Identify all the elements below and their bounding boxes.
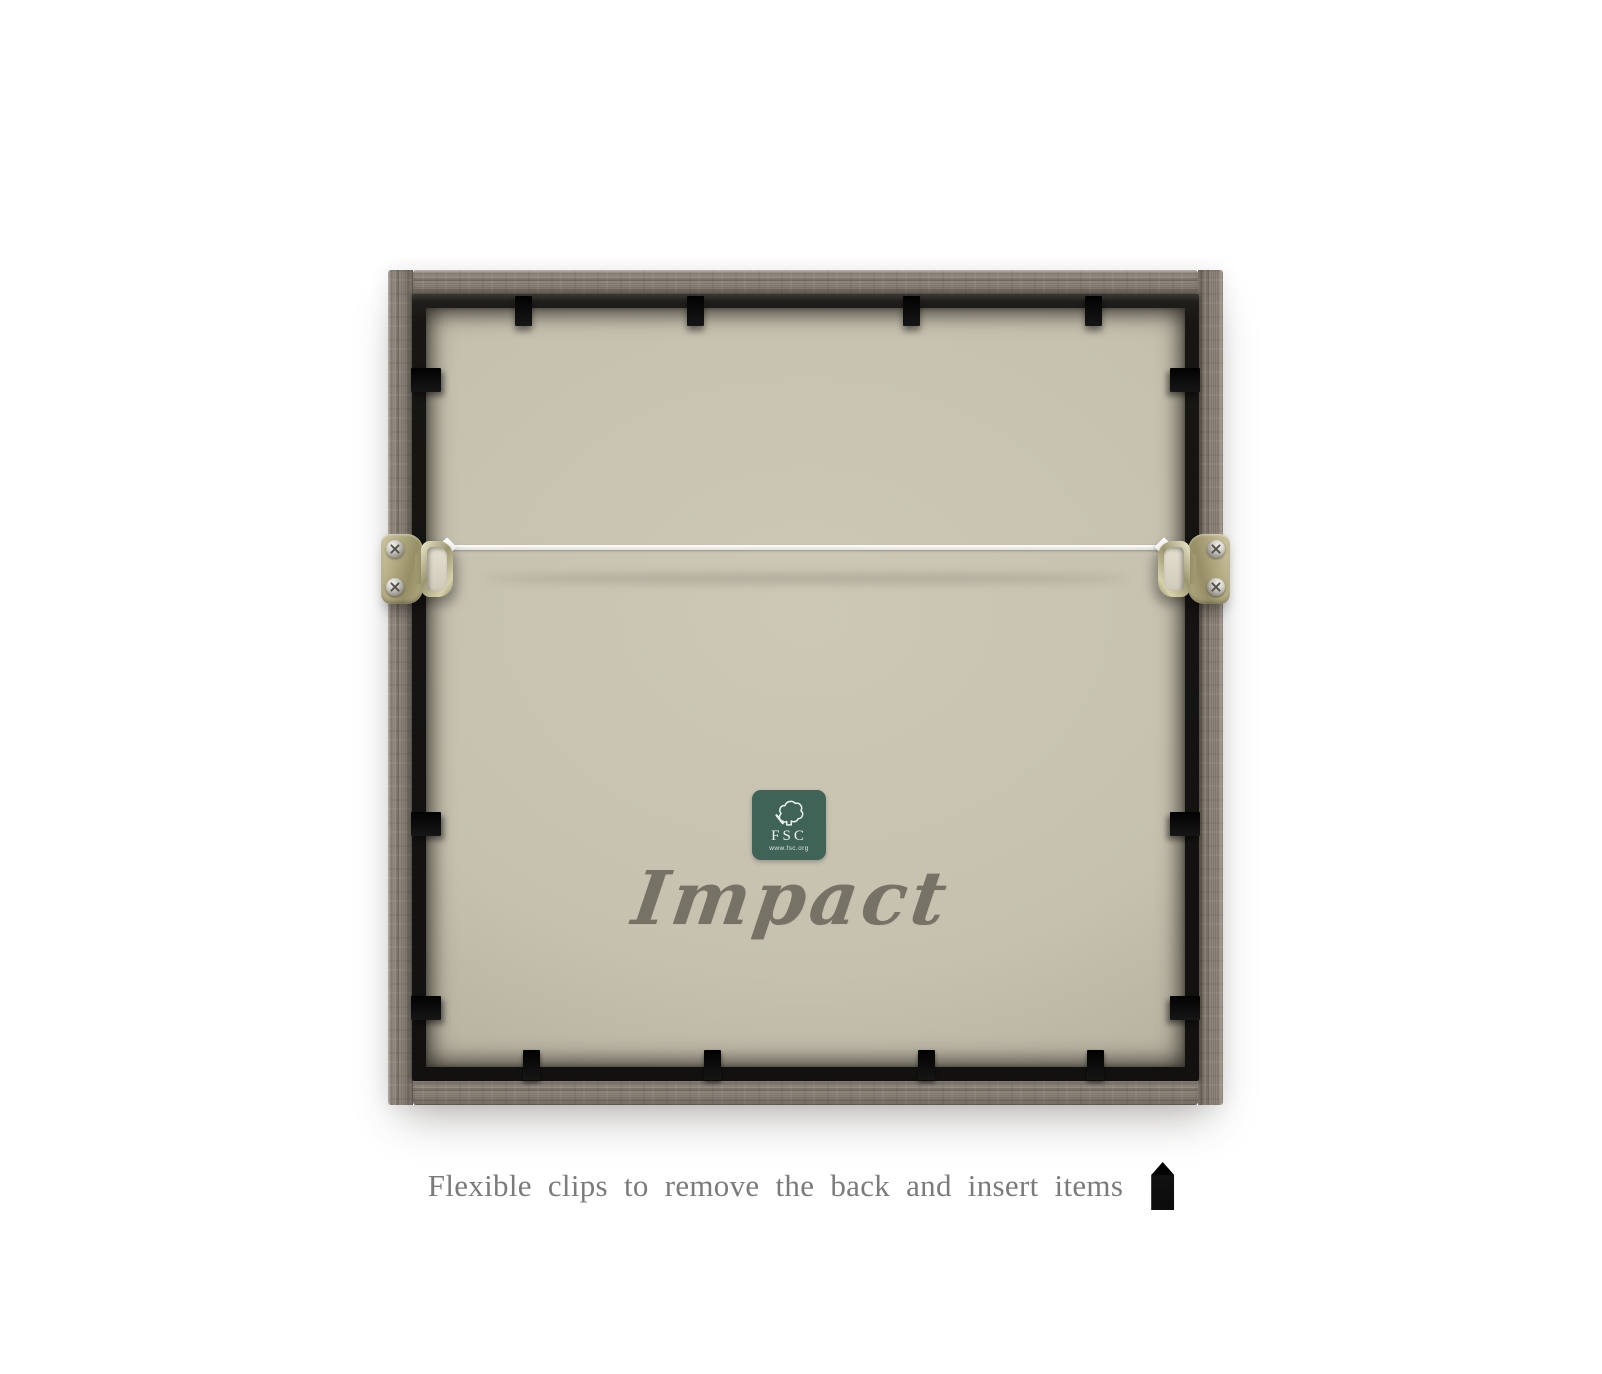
- wood-frame-left: [388, 270, 413, 1105]
- d-ring-icon: [1158, 541, 1190, 597]
- product-photo: FSC www.fsc.org Impact Flexible clips to…: [0, 0, 1602, 1374]
- retainer-clip: [411, 812, 441, 836]
- fsc-acronym: FSC: [771, 829, 807, 844]
- retainer-clip: [1170, 996, 1200, 1020]
- wood-frame-top: [413, 270, 1198, 295]
- brand-logo: Impact: [369, 862, 1214, 936]
- screw-icon: [1207, 540, 1225, 558]
- retainer-clip: [903, 296, 920, 326]
- d-ring-hanger-left: [381, 532, 455, 608]
- retainer-clip: [1170, 368, 1200, 392]
- flexible-clip-icon: [1151, 1162, 1174, 1210]
- wood-frame-bottom: [413, 1080, 1198, 1105]
- caption-text: Flexible clips to remove the back and in…: [428, 1168, 1123, 1204]
- d-ring-icon: [421, 541, 453, 597]
- screw-icon: [1207, 578, 1225, 596]
- retainer-clip: [1087, 1050, 1104, 1080]
- hanging-wire: [446, 545, 1165, 550]
- wood-frame-right: [1198, 270, 1223, 1105]
- caption-row: Flexible clips to remove the back and in…: [0, 1150, 1602, 1222]
- fsc-website: www.fsc.org: [769, 844, 808, 853]
- fsc-tree-icon: [772, 798, 806, 828]
- retainer-clip: [411, 996, 441, 1020]
- backing-board: [426, 308, 1185, 1067]
- retainer-clip: [1170, 812, 1200, 836]
- screw-icon: [386, 578, 404, 596]
- frame-back: FSC www.fsc.org Impact: [388, 270, 1223, 1105]
- fsc-certification-label: FSC www.fsc.org: [752, 790, 826, 860]
- retainer-clip: [704, 1050, 721, 1080]
- retainer-clip: [515, 296, 532, 326]
- wire-shadow: [483, 574, 1128, 583]
- retainer-clip: [523, 1050, 540, 1080]
- retainer-clip: [1085, 296, 1102, 326]
- d-ring-hanger-right: [1156, 532, 1230, 608]
- retainer-clip: [687, 296, 704, 326]
- retainer-clip: [411, 368, 441, 392]
- retainer-clip: [918, 1050, 935, 1080]
- screw-icon: [386, 540, 404, 558]
